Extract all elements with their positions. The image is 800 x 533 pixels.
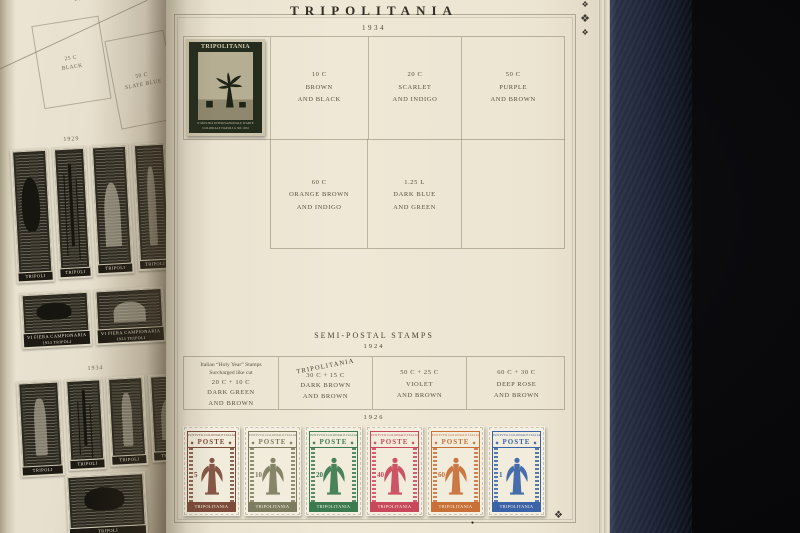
stamp-grid-row-2: 60 C ORANGE BROWN AND INDIGO 1.25 L DARK… <box>270 139 565 249</box>
stamp-value: 10 <box>255 471 262 479</box>
stamp-country-band: TRIPOLITANIA <box>310 502 357 511</box>
left-album-page: 1888 25 C BLACK 50 C SLATE BLUE 1929 TRI… <box>0 0 172 533</box>
stamp-value: 5 <box>194 471 198 479</box>
stamp-country-text: TRIPOLITANIA <box>189 42 262 51</box>
semi-postal-table: Italian “Holy Year” Stamps Surcharged li… <box>183 356 565 410</box>
stamp-country-band: TRIPOLITANIA <box>249 502 296 511</box>
stamp-engraving-landscape <box>67 473 146 529</box>
winged-figure-icon <box>443 453 469 499</box>
stamp-engraving-statue <box>108 377 146 457</box>
stamp-engraving-arch <box>92 146 132 266</box>
stamp-space: 10 C BROWN AND BLACK <box>271 37 369 139</box>
semi-note: Surcharged like cut <box>200 369 261 377</box>
stamp-illustration: TRIPOLI <box>10 148 55 284</box>
semi-color-line: AND BROWN <box>494 390 539 402</box>
stamp-space: 60 C ORANGE BROWN AND INDIGO <box>271 139 368 248</box>
stamp-space: 20 C SCARLET AND INDIGO <box>369 37 463 139</box>
space-color-line: AND GREEN <box>393 202 436 214</box>
bw-stamp-row-2: TRIPOLI TRIPOLI TRIPOLI TRIPOLI <box>16 373 172 478</box>
stamp-illustration: TRIPOLI <box>106 375 149 467</box>
semi-color-line: VIOLET <box>397 379 442 391</box>
affixed-green-stamp-1934: TRIPOLITANIA RR POSTE COLONIALI ITALIANE… <box>186 39 265 136</box>
semi-postal-space: 50 C + 25 C VIOLET AND BROWN <box>373 357 467 409</box>
stamp-poste-label: POSTE <box>442 438 470 446</box>
stamp-country-band: TRIPOLITANIA <box>432 502 479 511</box>
stamp-1926-60c: ISTITVTO COLONIALE ITALIANO ◆POSTE◆ 60 T… <box>427 426 484 516</box>
space-denomination: 1.25 L <box>393 177 436 189</box>
stamp-illustration: TRIPOLI <box>65 471 148 533</box>
stamp-album-photo: 1888 25 C BLACK 50 C SLATE BLUE 1929 TRI… <box>0 0 800 533</box>
space-color-line: ORANGE BROWN <box>289 189 349 201</box>
semi-postal-heading: SEMI-POSTAL STAMPS <box>182 331 566 340</box>
space-color-line: AND INDIGO <box>393 94 438 106</box>
semi-color-line: DARK BROWN <box>300 381 350 391</box>
stamp-engraving-figure <box>134 144 170 262</box>
stamp-space-color: BLACK <box>61 62 83 71</box>
bw-stamp-row-1: TRIPOLI TRIPOLI TRIPOLI TRIPOLI TRIPOLI <box>10 140 172 284</box>
space-color-line: DARK BLUE <box>393 189 436 201</box>
space-color-line: AND BLACK <box>298 94 341 106</box>
space-color-line: BROWN <box>298 82 341 94</box>
semi-postal-year: 1924 <box>182 343 566 350</box>
semi-postal-space: 60 C + 30 C DEEP ROSE AND BROWN <box>467 357 566 409</box>
bw-stamp-row-fair: VI FIERA CAMPIONARIA 1933 TRIPOLI VI FIE… <box>19 286 166 349</box>
stamp-space-value: 25 C <box>64 54 77 62</box>
stamp-illustration: TRIPOLI <box>90 144 135 276</box>
semi-denomination: 20 C + 10 C <box>207 378 255 388</box>
stamp-country-band: TRIPOLITANIA <box>188 502 235 511</box>
stamp-space-value: 50 C <box>135 71 148 79</box>
stamp-engraving-palm <box>66 379 104 461</box>
stamp-exhibition-text: II MOSTRA INTERNAZIONALE D'ARTE COLONIAL… <box>189 120 262 133</box>
semi-color-line: DEEP ROSE <box>494 379 539 391</box>
stamp-poste-label: POSTE <box>320 438 348 446</box>
stamp-space-color: SLATE BLUE <box>124 78 162 91</box>
winged-figure-icon <box>321 453 347 499</box>
semi-note: Italian “Holy Year” Stamps <box>200 361 261 369</box>
space-color-line: AND BROWN <box>491 94 536 106</box>
space-denomination: 10 C <box>298 69 341 81</box>
stamp-engraving-arab-figure <box>18 382 62 468</box>
semi-denomination: 60 C + 30 C <box>494 367 539 379</box>
right-album-page: ❖ ❖ ❖ ❖ ● TRIPOLITANIA 1934 TRIPOLITANIA… <box>166 0 598 533</box>
semi-postal-space: TRIPOLITANIA 30 C + 15 C DARK BROWN AND … <box>279 357 373 409</box>
stamp-illustration: TRIPOLI <box>52 146 93 280</box>
section-1926-year: 1926 <box>182 414 566 421</box>
semi-postal-space: Italian “Holy Year” Stamps Surcharged li… <box>184 357 279 409</box>
stamp-value: 60 <box>438 471 445 479</box>
semi-color-line: AND BROWN <box>397 390 442 402</box>
semi-color-line: AND BROWN <box>300 392 350 402</box>
semi-denomination: 50 C + 25 C <box>397 367 442 379</box>
space-color-line: SCARLET <box>393 82 438 94</box>
winged-figure-icon <box>199 453 225 499</box>
bw-stamp-row-3: TRIPOLI <box>65 471 148 533</box>
fair-stamp-illustration: VI FIERA CAMPIONARIA 1933 TRIPOLI <box>93 286 166 346</box>
stamp-engraving-camel <box>22 292 90 334</box>
stamp-engraving-ostrich <box>12 150 52 274</box>
space-denomination: 60 C <box>289 177 349 189</box>
album-cover-spine <box>608 0 692 533</box>
stamp-space: 50 C PURPLE AND BROWN <box>462 37 564 139</box>
stamps-1926-row: ISTITVTO COLONIALE ITALIANO ◆POSTE◆ 5 TR… <box>183 426 549 516</box>
stamp-country-band: TRIPOLITANIA <box>371 502 418 511</box>
stamp-1926-5c: ISTITVTO COLONIALE ITALIANO ◆POSTE◆ 5 TR… <box>183 426 240 516</box>
empty-stamp-space: 50 C SLATE BLUE <box>104 30 172 130</box>
stamp-poste-label: POSTE <box>198 438 226 446</box>
winged-figure-icon <box>504 453 530 499</box>
page-year: 1934 <box>182 24 566 32</box>
stamp-poste-label: POSTE <box>381 438 409 446</box>
semi-color-line: AND BROWN <box>207 399 255 409</box>
stamp-poste-label: POSTE <box>503 438 531 446</box>
stamp-value: 20 <box>316 471 323 479</box>
stamp-space-empty <box>462 139 564 248</box>
stamp-value: 40 <box>377 471 384 479</box>
stamp-country-band: TRIPOLI <box>60 268 90 277</box>
space-denomination: 20 C <box>393 69 438 81</box>
winged-figure-icon <box>260 453 286 499</box>
stamp-engraving-leopard <box>95 288 163 330</box>
stamp-1926-10c: ISTITVTO COLONIALE ITALIANO ◆POSTE◆ 10 T… <box>244 426 301 516</box>
stamp-engraving-tree <box>54 148 90 270</box>
stamp-grid-row-1: TRIPOLITANIA RR POSTE COLONIALI ITALIANE… <box>183 36 565 140</box>
empty-stamp-space: 25 C BLACK <box>31 16 111 110</box>
semi-color-line: DARK GREEN <box>207 388 255 398</box>
left-page-year-top: 1888 <box>74 0 91 3</box>
stamp-poste-label: POSTE <box>259 438 287 446</box>
stamp-1926-20c: ISTITVTO COLONIALE ITALIANO ◆POSTE◆ 20 T… <box>305 426 362 516</box>
stamp-illustration: TRIPOLI <box>16 379 65 477</box>
space-color-line: AND INDIGO <box>289 202 349 214</box>
stamp-illustration: TRIPOLI <box>64 377 107 471</box>
stamp-value: 1 <box>499 471 503 479</box>
ornament-icon: ❖ <box>580 12 590 25</box>
space-color-line: PURPLE <box>491 82 536 94</box>
stamp-space: 1.25 L DARK BLUE AND GREEN <box>368 139 461 248</box>
stamp-1926-1l: ISTITVTO COLONIALE ITALIANO ◆POSTE◆ 1 TR… <box>488 426 545 516</box>
stamp-country-band: TRIPOLITANIA <box>493 502 540 511</box>
corner-ornament-top-right: ❖ ❖ ❖ <box>580 0 590 37</box>
stamp-1926-40c: ISTITVTO COLONIALE ITALIANO ◆POSTE◆ 40 T… <box>366 426 423 516</box>
space-denomination: 50 C <box>491 69 536 81</box>
ornament-icon: ❖ <box>581 0 588 9</box>
stamp-vignette: RR POSTE COLONIALI ITALIANE <box>198 52 253 120</box>
page-title: TRIPOLITANIA <box>182 3 566 19</box>
palm-tree-icon <box>204 59 248 116</box>
winged-figure-icon <box>382 453 408 499</box>
left-page-year-1934: 1934 <box>87 365 103 372</box>
fair-stamp-illustration: VI FIERA CAMPIONARIA 1933 TRIPOLI <box>19 290 92 350</box>
stamp-side-text: RR POSTE COLONIALI ITALIANE <box>199 68 206 106</box>
stamp-space-with-stamp: TRIPOLITANIA RR POSTE COLONIALI ITALIANE… <box>184 37 271 139</box>
left-page-year-1929: 1929 <box>63 136 79 143</box>
ornament-icon: ❖ <box>581 28 588 37</box>
